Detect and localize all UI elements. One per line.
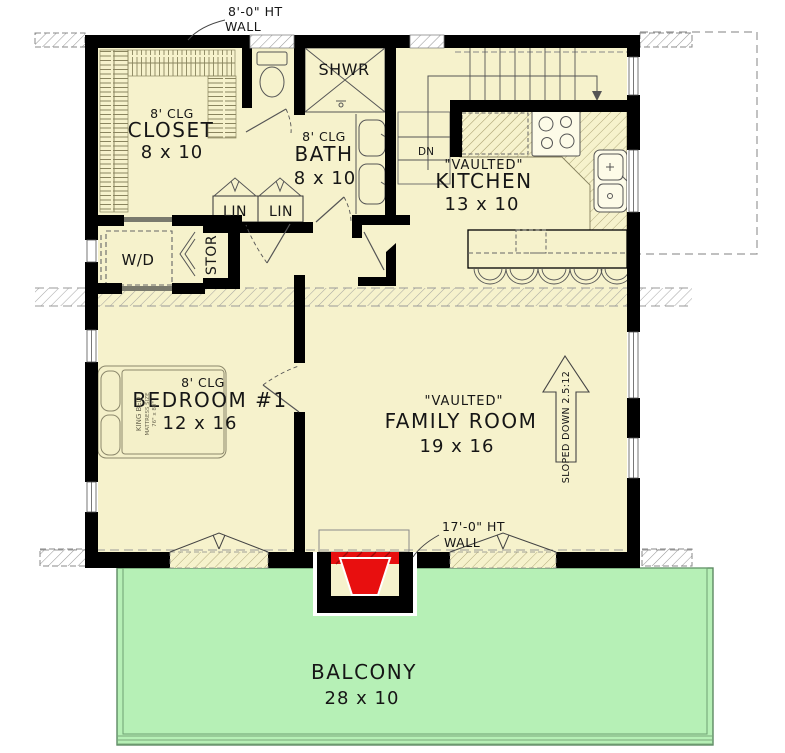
floor-plan: 8'-0" HT WALL 8' CLG CLOSET 8 x 10 SHWR … bbox=[0, 0, 785, 753]
floor-plan-drawing: 8'-0" HT WALL 8' CLG CLOSET 8 x 10 SHWR … bbox=[0, 0, 785, 753]
balcony-size-label: 28 x 10 bbox=[325, 688, 400, 709]
top-wall-note-line2: WALL bbox=[225, 19, 261, 34]
bed-label-line2: MATTRESS SIZE bbox=[145, 392, 151, 436]
window-left-2 bbox=[85, 330, 98, 362]
linen1-label: LIN bbox=[223, 204, 247, 220]
bath-size-label: 8 x 10 bbox=[294, 168, 356, 189]
window-right-4 bbox=[627, 438, 640, 478]
bottom-wall-note-line1: 17'-0" HT bbox=[442, 519, 505, 534]
window-left-3 bbox=[85, 482, 98, 512]
bed-label-line1: KING BED bbox=[135, 397, 143, 431]
shower-label: SHWR bbox=[318, 60, 369, 79]
family-tag-label: "VAULTED" bbox=[424, 394, 503, 409]
kitchen-name-label: KITCHEN bbox=[435, 169, 532, 193]
bottom-wall-note-line2: WALL bbox=[444, 535, 480, 550]
bed-label-line3: 76" x 80" bbox=[152, 401, 158, 427]
linen2-label: LIN bbox=[269, 204, 293, 220]
kitchen-size-label: 13 x 10 bbox=[445, 194, 520, 215]
window-right-1 bbox=[627, 57, 640, 95]
stairs-down-label: DN bbox=[418, 146, 434, 158]
sink-icon-2 bbox=[359, 164, 385, 204]
washer-dryer-label: W/D bbox=[122, 251, 155, 269]
closet-size-label: 8 x 10 bbox=[141, 142, 203, 163]
family-name-label: FAMILY ROOM bbox=[385, 409, 538, 433]
closet-name-label: CLOSET bbox=[128, 118, 215, 142]
window-right-3 bbox=[627, 332, 640, 398]
balcony-name-label: BALCONY bbox=[311, 660, 417, 684]
kitchen-sink-icon bbox=[594, 150, 628, 212]
shower-icon bbox=[305, 48, 385, 112]
stove-icon bbox=[532, 110, 580, 156]
slope-note-label: SLOPED DOWN 2.5:12 bbox=[561, 371, 572, 483]
sink-icon bbox=[359, 120, 385, 156]
storage-label: STOR bbox=[204, 235, 220, 275]
bedroom-size-label: 12 x 16 bbox=[163, 413, 238, 434]
window-left-1 bbox=[85, 240, 98, 262]
top-wall-note-line1: 8'-0" HT bbox=[228, 4, 283, 19]
window-right-2 bbox=[627, 150, 640, 212]
family-size-label: 19 x 16 bbox=[420, 436, 495, 457]
window-top-1 bbox=[250, 35, 294, 48]
bath-name-label: BATH bbox=[294, 142, 353, 166]
window-top-2 bbox=[410, 35, 444, 48]
toilet-icon bbox=[257, 52, 287, 97]
